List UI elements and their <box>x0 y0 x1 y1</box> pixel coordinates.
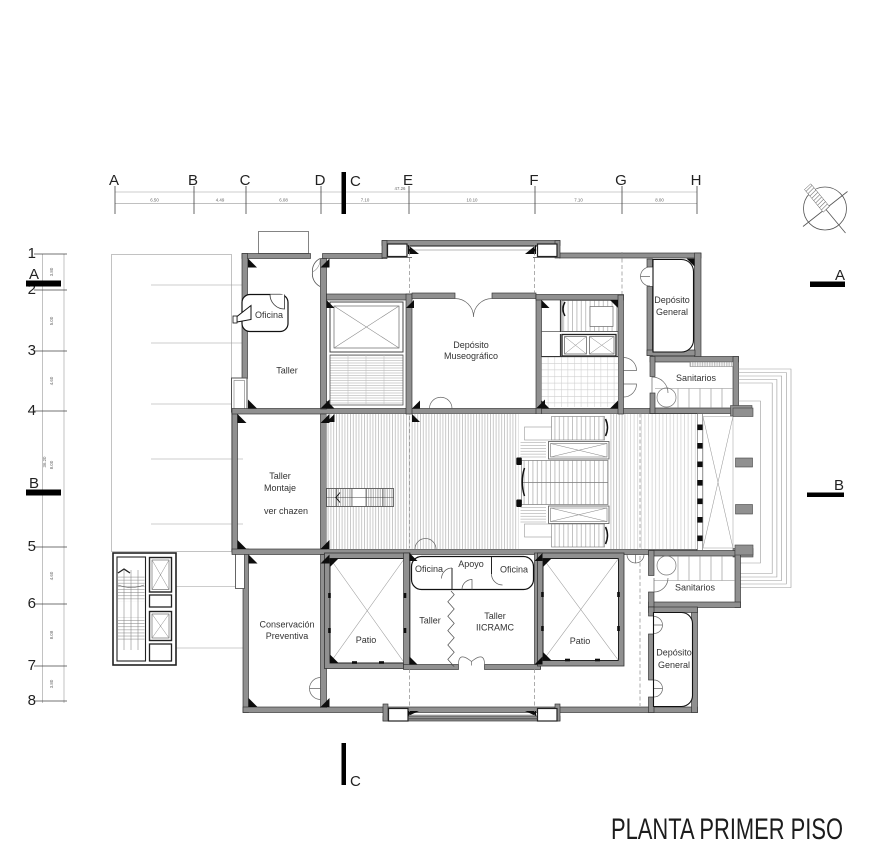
svg-text:4.49: 4.49 <box>216 198 225 203</box>
svg-text:8.00: 8.00 <box>655 198 664 203</box>
svg-text:Montaje: Montaje <box>264 483 296 493</box>
svg-text:Oficina: Oficina <box>415 564 443 574</box>
svg-text:Conservación: Conservación <box>259 620 314 630</box>
svg-text:5: 5 <box>28 538 36 555</box>
svg-text:C: C <box>350 773 361 790</box>
svg-text:7.10: 7.10 <box>361 198 370 203</box>
svg-text:7.10: 7.10 <box>574 198 583 203</box>
svg-text:ver chazen: ver chazen <box>264 506 308 516</box>
svg-text:8: 8 <box>28 692 36 709</box>
svg-text:Depósito: Depósito <box>656 648 692 658</box>
svg-text:Taller: Taller <box>276 366 298 376</box>
svg-text:C: C <box>240 172 251 189</box>
svg-text:6: 6 <box>28 595 36 612</box>
svg-text:Oficina: Oficina <box>500 565 528 575</box>
svg-text:A: A <box>29 266 39 283</box>
svg-text:B: B <box>188 172 198 189</box>
svg-text:4.60: 4.60 <box>49 376 54 385</box>
svg-text:Depósito: Depósito <box>453 340 489 350</box>
svg-text:36.20: 36.20 <box>42 456 47 468</box>
svg-text:4: 4 <box>28 402 36 419</box>
svg-text:1: 1 <box>28 245 36 262</box>
svg-text:3.80: 3.80 <box>49 267 54 276</box>
svg-text:8.08: 8.08 <box>49 630 54 639</box>
svg-text:5.00: 5.00 <box>49 316 54 325</box>
svg-text:General: General <box>658 660 690 670</box>
svg-text:Apoyo: Apoyo <box>458 559 484 569</box>
svg-text:6.50: 6.50 <box>150 198 159 203</box>
svg-text:General: General <box>656 307 688 317</box>
svg-text:D: D <box>315 172 326 189</box>
svg-text:Taller: Taller <box>269 471 291 481</box>
svg-text:Preventiva: Preventiva <box>266 631 309 641</box>
svg-text:B: B <box>29 475 39 492</box>
svg-text:3.80: 3.80 <box>49 679 54 688</box>
svg-text:47.26: 47.26 <box>395 186 407 191</box>
svg-text:B: B <box>834 477 844 494</box>
svg-text:4.60: 4.60 <box>49 571 54 580</box>
svg-text:PLANTA PRIMER PISO: PLANTA PRIMER PISO <box>611 813 843 846</box>
svg-text:C: C <box>350 173 361 190</box>
svg-text:A: A <box>109 172 119 189</box>
svg-text:Depósito: Depósito <box>654 295 690 305</box>
svg-text:6.08: 6.08 <box>279 198 288 203</box>
svg-text:Patio: Patio <box>570 636 591 646</box>
svg-text:H: H <box>691 172 702 189</box>
svg-text:Oficina: Oficina <box>255 310 283 320</box>
svg-text:10.10: 10.10 <box>467 198 479 203</box>
svg-text:3: 3 <box>28 342 36 359</box>
svg-text:Taller: Taller <box>419 616 441 626</box>
svg-text:Patio: Patio <box>356 635 377 645</box>
svg-text:8.00: 8.00 <box>49 460 54 469</box>
svg-text:7: 7 <box>28 657 36 674</box>
svg-text:Sanitarios: Sanitarios <box>675 583 716 593</box>
svg-text:F: F <box>529 172 538 189</box>
svg-text:Museográfico: Museográfico <box>444 351 498 361</box>
svg-text:A: A <box>835 267 845 284</box>
svg-text:Taller: Taller <box>484 611 506 621</box>
svg-text:G: G <box>615 172 627 189</box>
svg-text:Sanitarios: Sanitarios <box>676 373 717 383</box>
svg-text:IICRAMC: IICRAMC <box>476 623 515 633</box>
